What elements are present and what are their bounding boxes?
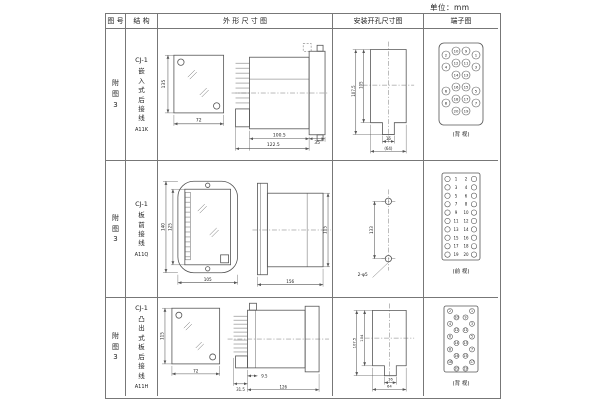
pin-number: 18 [454,96,459,101]
fig-no-cell: 附图3 [106,29,126,161]
install-drawing-a11k: 107.5 105 16 (64) [333,29,423,161]
pin-number: 14 [463,226,469,231]
pin-number: 8 [449,347,451,351]
outline-drawing-cell: 115 72 9.5 31.5 [158,298,333,396]
model-label: CJ-1 [135,200,148,208]
pin-circle [445,184,450,189]
pin-circle [471,209,476,214]
pin-circle [471,193,476,198]
dim-label: 135 [161,79,167,88]
pin-number: 7 [471,347,473,351]
structure-desc: 板前接线 [136,211,148,249]
pin-number: 5 [455,193,458,198]
pin-circle [471,201,476,206]
outline-drawing-cell: 135 72 100.5 [158,29,333,161]
dim-label: 133 [369,225,374,233]
pin-number: 10 [454,48,459,53]
pin-number: 15 [464,84,469,89]
pin-number: 10 [454,315,458,319]
pin-circle [445,226,450,231]
dim-label: 115 [323,225,328,233]
structure-desc: 嵌入式后接线 [136,67,148,124]
dim-label: 105 [359,80,364,88]
pin-number: 15 [453,235,459,240]
view-label: (背 视) [452,379,469,387]
install-drawing-a11h: 107.5 104 16 64 [333,298,423,396]
dim-label: 126 [279,384,287,389]
dim-label: 16 [388,378,393,382]
pin-circle [445,201,450,206]
pin-number: 6 [449,335,451,339]
pin-number: 19 [464,108,469,113]
pin-circle [471,184,476,189]
pin-number: 12 [454,60,459,65]
dim-label: 9.5 [261,373,268,378]
pin-number: 1 [455,176,458,181]
dim-label: 156 [286,279,294,284]
datasheet-page: 单位：mm 图 号 结 构 外 形 尺 寸 图 安装开孔尺寸图 端子图 附图3 … [0,0,600,400]
pin-number: 6 [445,88,448,93]
dim-label: 35 [314,140,320,146]
pin-number: 14 [454,72,459,77]
dim-label: 105 [204,277,212,282]
spec-table: 图 号 结 构 外 形 尺 寸 图 安装开孔尺寸图 端子图 附图3 CJ-1 嵌… [105,13,501,399]
model-code: A11K [135,127,148,133]
pin-number: 8 [445,100,448,105]
pin-number: 2 [445,52,448,57]
pin-circle [445,251,450,256]
view-label: (前 视) [452,267,469,275]
dim-label: 140 [160,222,165,230]
view-label: (背 视) [452,130,469,138]
dim-label: 31.5 [236,387,245,392]
dim-label: 122.5 [267,142,280,148]
terminal-diagram-a11q: 1234567891011121314151617181920 (前 视) [424,161,498,298]
dim-label: (64) [384,145,393,150]
pin-circle [471,235,476,240]
install-drawing-cell: 107.5 104 16 64 [333,298,424,396]
pin-number: 18 [448,360,452,364]
model-code: A11H [135,384,149,390]
pin-number: 15 [463,354,467,358]
pin-number: 3 [475,64,478,69]
pin-circle [445,218,450,223]
pin-number: 16 [454,354,458,358]
header-structure: 结 构 [126,14,158,29]
pin-circle [471,218,476,223]
pin-number: 3 [471,322,473,326]
dim-label: 107.5 [352,337,356,348]
pin-number: 4 [465,184,468,189]
terminal-diagram-cell: 2110943121165141387161518172019 (背 视) [424,298,498,396]
dim-label: 115 [159,332,164,340]
terminal-diagram-a11h: 2110943121165141387161518172019 (背 视) [424,298,498,396]
pin-number: 14 [454,341,458,345]
terminal-diagram-cell: 1234567891011121314151617181920 (前 视) [424,161,498,298]
outline-drawing-cell: 140 125 105 156 [158,161,333,298]
pin-number: 17 [453,243,459,248]
model-code: A11Q [135,252,149,258]
header-install: 安装开孔尺寸图 [333,14,424,29]
structure-cell: CJ-1 板前接线 A11Q [126,161,158,298]
dim-label: 64 [387,385,392,389]
pin-number: 9 [455,210,458,215]
dim-label: 107.5 [351,84,356,96]
dim-label: 125 [167,222,172,230]
dim-label: 16 [386,136,392,141]
header-outline: 外 形 尺 寸 图 [158,14,333,29]
pin-number: 11 [453,218,459,223]
outline-drawing-a11h: 115 72 9.5 31.5 [158,298,332,396]
pin-circle [445,176,450,181]
pin-number: 4 [445,64,448,69]
pin-number: 18 [463,243,469,248]
pin-number: 17 [470,360,474,364]
outline-drawing-a11q: 140 125 105 156 [158,161,332,298]
structure-cell: CJ-1 凸出式板后接线 A11H [126,298,158,396]
pin-number: 5 [471,335,473,339]
pin-number: 20 [454,367,458,371]
structure-desc: 凸出式板后接线 [136,315,148,381]
pin-circle [471,243,476,248]
dim-label: 100.5 [273,132,286,138]
model-label: CJ-1 [135,304,148,312]
install-drawing-cell: 107.5 105 16 (64) [333,29,424,161]
pin-circle [445,209,450,214]
pin-number: 13 [463,341,467,345]
pin-number: 7 [455,201,458,206]
header-terminal: 端子图 [424,14,498,29]
pin-number: 11 [463,328,467,332]
dim-label: 104 [360,334,364,342]
pin-number: 9 [464,315,466,319]
pin-number: 16 [463,235,469,240]
pin-number: 11 [464,60,469,65]
pin-number: 7 [475,100,478,105]
pin-number: 10 [463,210,469,215]
pin-number: 19 [463,367,467,371]
model-label: CJ-1 [135,56,148,64]
fig-no: 附图3 [111,78,121,111]
pin-number: 20 [463,252,469,257]
header-fig-no: 图 号 [106,14,126,29]
pin-number: 1 [471,309,473,313]
pin-number: 9 [465,48,468,53]
pin-circle [471,226,476,231]
pin-number: 8 [465,201,468,206]
pin-number: 4 [449,322,451,326]
pin-number: 6 [465,193,468,198]
pin-number: 12 [463,218,469,223]
dim-label: 72 [196,117,202,123]
pin-number: 17 [464,96,469,101]
unit-label: 单位：mm [430,2,470,13]
pin-circle [445,243,450,248]
structure-cell: CJ-1 嵌入式后接线 A11K [126,29,158,161]
pin-number: 20 [454,108,459,113]
pin-number: 19 [453,252,459,257]
hole-label: 2-φ5 [358,271,368,277]
terminal-diagram-cell: 2109141211314136161558181772019 (背 视) [424,29,498,161]
pin-circle [445,193,450,198]
pin-number: 13 [464,72,469,77]
pin-number: 3 [455,184,458,189]
install-drawing-a11q: 133 2-φ5 [333,161,423,298]
pin-number: 2 [465,176,468,181]
fig-no-cell: 附图3 [106,298,126,396]
pin-number: 13 [453,226,459,231]
pin-circle [445,235,450,240]
fig-no: 附图3 [111,213,121,246]
pin-number: 1 [475,52,478,57]
pin-number: 12 [454,328,458,332]
pin-circle [471,251,476,256]
install-drawing-cell: 133 2-φ5 [333,161,424,298]
pin-number: 16 [454,84,459,89]
fig-no: 附图3 [111,331,121,364]
pin-number: 5 [475,88,478,93]
fig-no-cell: 附图3 [106,161,126,298]
pin-circle [471,176,476,181]
dim-label: 72 [193,368,199,373]
pin-number: 2 [449,309,451,313]
outline-drawing-a11k: 135 72 100.5 [158,29,332,161]
terminal-diagram-a11k: 2109141211314136161558181772019 (背 视) [424,29,498,161]
